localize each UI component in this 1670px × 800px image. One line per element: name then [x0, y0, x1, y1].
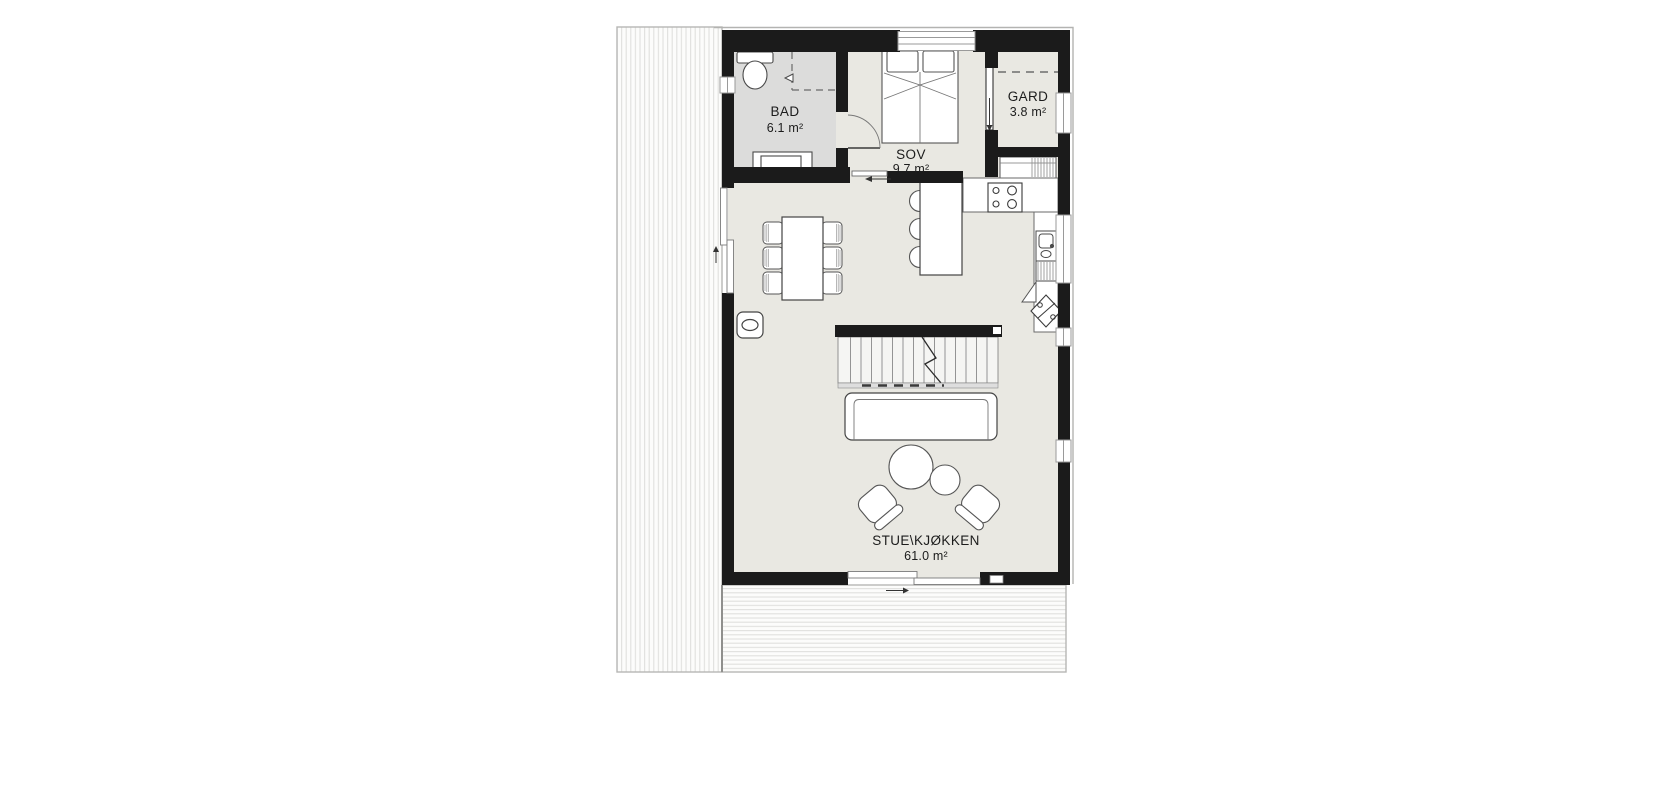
wall-stairs-notch: [993, 327, 1001, 334]
floor-plan-page: BAD 6.1 m² SOV 9.7 m² GARD 3.8 m² STUE\K…: [0, 0, 1670, 800]
room-area-bad: 6.1 m²: [767, 121, 804, 135]
wall-right: [1058, 283, 1070, 328]
wall-top-left: [722, 30, 900, 52]
wall-right: [1058, 462, 1070, 585]
wall-right: [1058, 133, 1070, 215]
room-label-bad: BAD: [771, 104, 800, 119]
gard-bench-unit: [1000, 157, 1056, 178]
terrace-bottom-deck: [722, 585, 1066, 672]
wall-gard-left: [985, 52, 998, 68]
gard-sliding-door: [986, 66, 993, 131]
room-area-stue: 61.0 m²: [904, 549, 948, 563]
stove-cooktop: [988, 183, 1022, 212]
kitchen-island: [910, 182, 963, 275]
wall-gard-left: [985, 130, 998, 177]
room-area-gard: 3.8 m²: [1010, 105, 1047, 119]
dining-chairs-right: [822, 222, 842, 294]
sofa: [845, 393, 997, 440]
room-area-sov: 9.7 m²: [893, 162, 930, 176]
window-bad-left: [720, 77, 735, 93]
pillow: [923, 51, 954, 72]
window-living-right-2: [1056, 440, 1071, 462]
wall-right: [1058, 346, 1070, 440]
bottom-wall-window: [990, 576, 1003, 584]
dining-set: [763, 217, 842, 300]
kitchen-drawer-unit: [1036, 261, 1056, 281]
window-living-right-1: [1056, 328, 1071, 346]
wall-bad-bottom: [722, 167, 850, 183]
wall-top-right: [973, 30, 1070, 52]
staircase: [838, 337, 998, 388]
window-top-sov: [898, 32, 975, 51]
terrace-left-deck: [617, 27, 722, 672]
room-label-stue: STUE\KJØKKEN: [872, 533, 980, 548]
dining-chairs-left: [763, 222, 783, 294]
coffee-table-small: [930, 465, 960, 495]
wall-left: [722, 30, 734, 77]
room-label-sov: SOV: [896, 147, 926, 162]
wall-bad-right: [836, 52, 848, 112]
wood-stove: [737, 312, 763, 338]
wall-stairs: [835, 325, 1002, 337]
wall-right: [1058, 30, 1070, 93]
coffee-table-large: [889, 445, 933, 489]
room-label-gard: GARD: [1008, 89, 1049, 104]
double-bed: [882, 48, 958, 143]
wall-left: [722, 293, 734, 585]
wall-bottom-left: [722, 572, 848, 585]
window-kitchen-right: [1056, 215, 1071, 283]
floor-plan-svg: BAD 6.1 m² SOV 9.7 m² GARD 3.8 m² STUE\K…: [0, 0, 1670, 800]
dining-table: [782, 217, 823, 300]
wall-bad-right: [836, 148, 848, 167]
wall-gard-bottom: [998, 147, 1070, 157]
pillow: [887, 51, 918, 72]
kitchen-sink: [1036, 231, 1056, 261]
window-gard-right: [1056, 93, 1071, 133]
